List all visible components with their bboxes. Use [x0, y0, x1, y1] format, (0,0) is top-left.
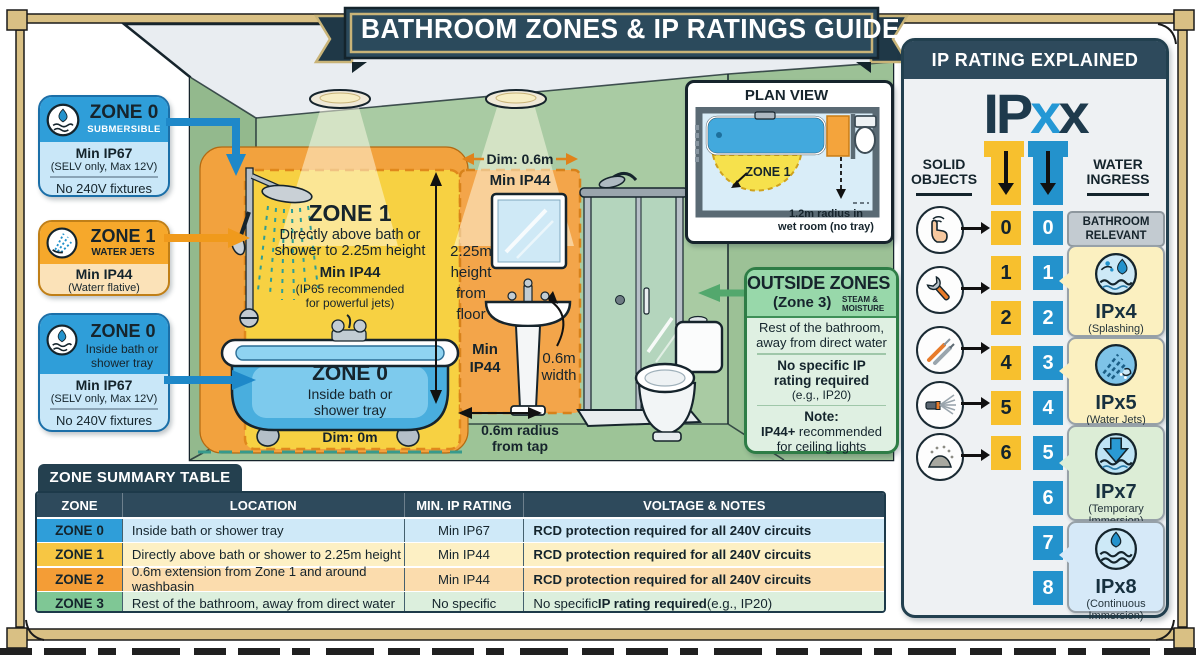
height-label-line4: floor: [444, 306, 498, 323]
zone0-desc-line2: shower tray: [280, 402, 420, 418]
callout-rating: Min IP67: [40, 377, 168, 393]
solid-rating-cell: 5: [991, 391, 1021, 425]
cropped-text-strip: [0, 648, 1200, 655]
ipx7-callout: IPx7 (Temporary Immersion): [1067, 425, 1165, 521]
down-arrow-icon: [998, 183, 1014, 195]
outside-req-line1: No specific IP: [747, 358, 896, 373]
callout-zone-label: ZONE 0: [82, 321, 164, 342]
temporary-immersion-icon: [1093, 431, 1139, 477]
callout-zone0-submersible: ZONE 0 SUBMERSIBLE Min IP67 (SELV only, …: [38, 95, 170, 197]
basin-ip44-word: IP44: [462, 359, 508, 376]
table-row-zone1: ZONE 1 Directly above bath or shower to …: [37, 543, 884, 566]
width-label-line2: width: [534, 367, 584, 384]
callout-restriction: No 240V fixtures: [40, 181, 168, 196]
bath-dimension-label: Dim: 0m: [295, 429, 405, 445]
outside-req-line2: rating required: [747, 373, 896, 388]
plan-radius-line1: 1.2m radius in: [766, 208, 886, 221]
plan-view-inset: PLAN VIEW ZONE 1 1.2m radius in wet room…: [685, 80, 894, 244]
basin-dimension-label: Dim: 0.6m: [482, 151, 558, 167]
zone1-note-line1: (IP65 recommended: [270, 283, 430, 297]
zone0-title: ZONE 0: [280, 362, 420, 386]
page-title: BATHROOM ZONES & IP RATINGS GUIDE: [361, 13, 862, 45]
cable-spray-icon: [916, 381, 964, 429]
down-arrow-icon: [1046, 151, 1050, 183]
width-label-line1: 0.6m: [534, 350, 584, 367]
divider: [757, 353, 886, 355]
tap-radius-line2: from tap: [478, 438, 562, 454]
callout-rating: Min IP67: [40, 145, 168, 161]
solid-rating-cell: 1: [991, 256, 1021, 290]
zone0-desc-line1: Inside bath or: [280, 386, 420, 402]
basin-min-word: Min: [462, 341, 508, 358]
water-rating-cell: 8: [1033, 571, 1063, 605]
ipxx-wordmark: IPxx: [904, 81, 1166, 146]
mirror: [492, 194, 566, 268]
outside-desc-line1: Rest of the bathroom,: [747, 320, 896, 335]
column-header: ZONE: [37, 493, 123, 517]
outside-zones-tag1: STEAM &: [842, 295, 878, 304]
water-jets-icon: [45, 226, 79, 265]
zone1-desc-line1: Directly above bath or: [270, 227, 430, 244]
plan-view-title: PLAN VIEW: [688, 87, 885, 104]
ip-rating-panel: IP RATING EXPLAINED IPxx SOLID OBJECTS W…: [901, 38, 1169, 618]
water-rating-cell: 2: [1033, 301, 1063, 335]
dust-icon: [916, 433, 964, 481]
zone-summary-table: ZONE LOCATION MIN. IP RATING VOLTAGE & N…: [35, 491, 886, 613]
solid-rating-cell: 0: [991, 211, 1021, 245]
callout-zone-tag: SUBMERSIBLE: [84, 124, 164, 135]
solid-rating-cell: 6: [991, 436, 1021, 470]
table-header-row: ZONE LOCATION MIN. IP RATING VOLTAGE & N…: [37, 493, 884, 517]
drop-waves-icon: [45, 102, 81, 143]
water-jets-icon: [1093, 342, 1139, 388]
down-arrow-icon: [1004, 151, 1008, 183]
water-rating-cell: 4: [1033, 391, 1063, 425]
height-label-line2: height: [444, 264, 498, 281]
zone1-rating: Min IP44: [270, 264, 430, 281]
outside-zones-title: OUTSIDE ZONES: [747, 273, 890, 294]
column-header: LOCATION: [123, 493, 405, 517]
outside-note-line1: IP44+ recommended: [747, 424, 896, 439]
callout-restriction: No 240V fixtures: [40, 413, 168, 428]
table-row-zone2: ZONE 2 0.6m extension from Zone 1 and ar…: [37, 568, 884, 591]
outside-zones-subtitle: (Zone 3): [773, 294, 831, 311]
solid-rating-cell: 4: [991, 346, 1021, 380]
tap-radius-line1: 0.6m radius: [478, 422, 562, 438]
ipx5-callout: IPx5 (Water Jets): [1067, 337, 1165, 425]
callout-outside-zones: OUTSIDE ZONES (Zone 3) STEAM & MOISTURE …: [744, 267, 899, 454]
plan-radius-line2: wet room (no tray): [766, 221, 886, 234]
column-header: MIN. IP RATING: [405, 493, 525, 517]
plan-zone1-label: ZONE 1: [733, 165, 803, 180]
solid-objects-label: SOLID OBJECTS: [904, 157, 984, 188]
callout-zone-tag: WATER JETS: [82, 247, 164, 259]
water-ingress-underline: [1087, 193, 1149, 196]
wrench-icon: [916, 266, 964, 314]
callout-zone-label: ZONE 1: [82, 226, 164, 247]
callout-zone1-waterjets: ZONE 1 WATER JETS Min IP44 (Waterr flati…: [38, 220, 170, 296]
divider: [50, 408, 158, 410]
zone-summary-table-tab: ZONE SUMMARY TABLE: [38, 464, 242, 492]
callout-rating-note: (Waterr flative): [40, 282, 168, 294]
callout-rating-note: (SELV only, Max 12V): [40, 393, 168, 405]
screwdrivers-icon: [916, 326, 964, 374]
callout-rating: Min IP44: [40, 266, 168, 282]
zone1-desc-line2: shower to 2.25m height: [270, 243, 430, 260]
ipx8-callout: IPx8 (Continuous Immersion): [1067, 521, 1165, 613]
outside-note-line2: for ceiling lights: [747, 439, 896, 454]
ip-panel-header: IP RATING EXPLAINED: [932, 50, 1139, 70]
outside-zones-tag2: MOISTURE: [842, 304, 884, 313]
zone1-note-line2: for powerful jets): [270, 297, 430, 311]
height-label-line1: 2.25m: [444, 243, 498, 260]
callout-zone-tag: Inside bath or shower tray: [80, 342, 164, 371]
height-label-line3: from: [444, 285, 498, 302]
water-ingress-label: WATER INGRESS: [1075, 157, 1161, 188]
ceiling-light-icon: [486, 90, 546, 108]
down-arrow-icon: [1040, 183, 1056, 195]
infographic-bathroom-zones: BATHROOM ZONES & IP RATINGS GUIDE ZONE 0…: [0, 0, 1200, 655]
bathroom-relevant-badge: BATHROOM RELEVANT: [1067, 211, 1165, 247]
callout-zone0-bath: ZONE 0 Inside bath or shower tray Min IP…: [38, 313, 170, 432]
ceiling-light-icon: [310, 90, 370, 108]
outside-desc-line2: away from direct water: [747, 335, 896, 350]
splashing-icon: [1093, 251, 1139, 297]
ipx4-callout: IPx4 (Splashing): [1067, 245, 1165, 337]
divider: [757, 405, 886, 407]
plan-view-drawing: [695, 107, 880, 219]
drop-waves-icon: [45, 323, 79, 362]
continuous-immersion-icon: [1093, 526, 1139, 572]
column-header: VOLTAGE & NOTES: [524, 493, 884, 517]
outside-req-eg: (e.g., IP20): [747, 388, 896, 402]
solid-rating-cell: 2: [991, 301, 1021, 335]
table-row-zone0: ZONE 0 Inside bath or shower tray Min IP…: [37, 519, 884, 542]
callout-rating-note: (SELV only, Max 12V): [40, 161, 168, 173]
solid-objects-underline: [916, 193, 972, 196]
water-rating-cell: 6: [1033, 481, 1063, 515]
basin-rating-label: Min IP44: [480, 172, 560, 189]
divider: [50, 176, 158, 178]
touch-icon: [916, 206, 964, 254]
callout-zone-label: ZONE 0: [84, 102, 164, 124]
outside-note-label: Note:: [747, 409, 896, 424]
table-row-zone3: ZONE 3 Rest of the bathroom, away from d…: [37, 592, 884, 613]
zone1-title: ZONE 1: [285, 200, 415, 227]
water-rating-cell: 0: [1033, 211, 1063, 245]
